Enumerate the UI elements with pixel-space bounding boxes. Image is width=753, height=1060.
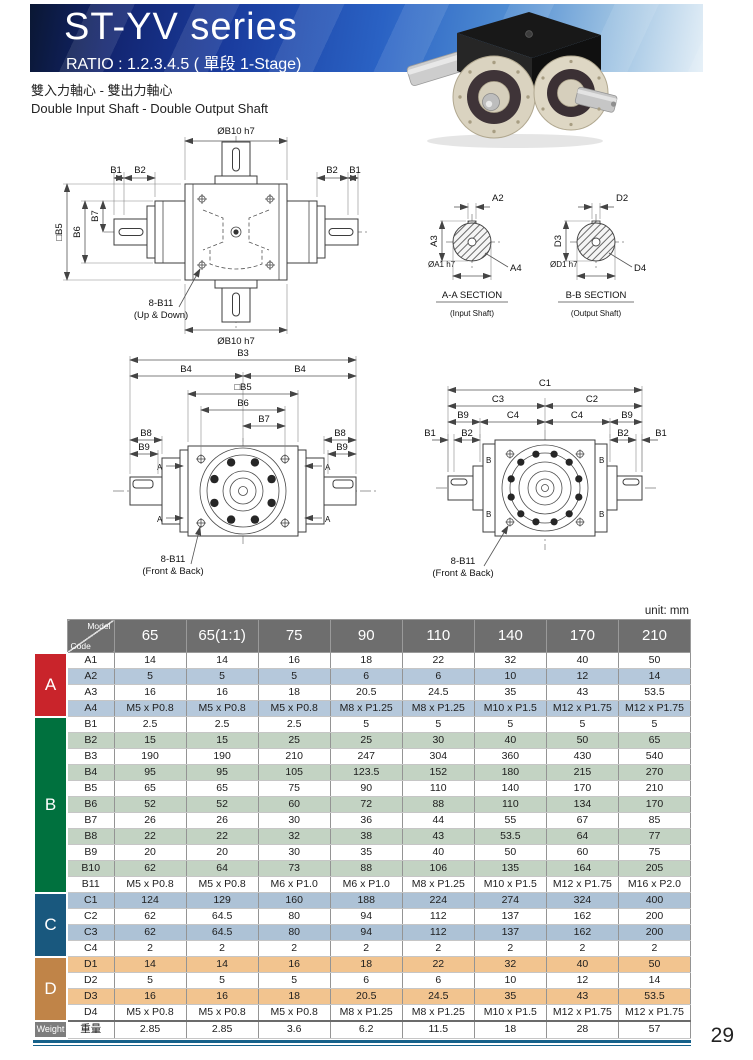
group-label-C: C	[34, 893, 67, 957]
cell: 2.5	[114, 717, 186, 733]
cell: 16	[186, 989, 258, 1005]
row-code: B1	[67, 717, 114, 733]
cell: M5 x P0.8	[186, 877, 258, 893]
cut-mark-a: A	[325, 515, 331, 524]
cell: 190	[186, 749, 258, 765]
row-code: A3	[67, 685, 114, 701]
dim-label-b1-left: B1	[110, 165, 122, 176]
cell: 188	[330, 893, 402, 909]
cell: 304	[402, 749, 474, 765]
cell: 67	[546, 813, 618, 829]
cell: 15	[186, 733, 258, 749]
cell: 162	[546, 925, 618, 941]
cell: 112	[402, 925, 474, 941]
column-header: 65	[114, 620, 186, 653]
cell: M6 x P1.0	[330, 877, 402, 893]
group-label-A: A	[34, 653, 67, 717]
cell: 2	[402, 941, 474, 957]
cell: 14	[186, 653, 258, 669]
dim-label-b7: B7	[258, 414, 270, 425]
cell: 14	[114, 653, 186, 669]
cell: 24.5	[402, 989, 474, 1005]
cell: 5	[186, 973, 258, 989]
table-row: B65252607288110134170	[34, 797, 691, 813]
table-row: A255566101214	[34, 669, 691, 685]
cell: 270	[618, 765, 690, 781]
cell: 110	[474, 797, 546, 813]
cell: 64.5	[186, 909, 258, 925]
bolt-note-sub: (Front & Back)	[432, 568, 493, 579]
cell: 152	[402, 765, 474, 781]
corner-code-label: Code	[71, 641, 91, 651]
cell: 430	[546, 749, 618, 765]
cell: M12 x P1.75	[618, 701, 690, 717]
cell: 26	[114, 813, 186, 829]
cell: M16 x P2.0	[618, 877, 690, 893]
table-row: B565657590110140170210	[34, 781, 691, 797]
row-code: C1	[67, 893, 114, 909]
cell: 88	[402, 797, 474, 813]
row-code: B9	[67, 845, 114, 861]
cell: 14	[618, 973, 690, 989]
dim-label-b1: B1	[655, 428, 667, 439]
cell: 22	[114, 829, 186, 845]
bolt-note-label: 8-B11	[451, 556, 476, 567]
cell: 200	[618, 925, 690, 941]
unit-label: unit: mm	[33, 603, 691, 619]
row-code: D1	[67, 957, 114, 973]
cell: 72	[330, 797, 402, 813]
cell: 324	[546, 893, 618, 909]
cell: 170	[546, 781, 618, 797]
cell: 16	[258, 653, 330, 669]
weight-label: Weight	[34, 1021, 67, 1038]
cell: 105	[258, 765, 330, 781]
cell: 25	[330, 733, 402, 749]
dim-label-c4: C4	[571, 410, 583, 421]
cell: 32	[474, 957, 546, 973]
cell: 57	[618, 1021, 690, 1038]
row-code: B3	[67, 749, 114, 765]
dim-label-b9: B9	[457, 410, 469, 421]
dim-label-d1: ØD1 h7	[550, 260, 578, 269]
cell: 53.5	[618, 989, 690, 1005]
cell: 18	[474, 1021, 546, 1038]
cell: 2	[186, 941, 258, 957]
cell: 62	[114, 909, 186, 925]
cell: 2.85	[114, 1021, 186, 1038]
cell: 12	[546, 973, 618, 989]
cell: 50	[618, 653, 690, 669]
cell: 64.5	[186, 925, 258, 941]
cell: 5	[546, 717, 618, 733]
cell: 62	[114, 861, 186, 877]
cell: 43	[546, 685, 618, 701]
cell: 124	[114, 893, 186, 909]
cell: 95	[186, 765, 258, 781]
cell: 5	[258, 669, 330, 685]
dim-label-a1: ØA1 h7	[428, 260, 456, 269]
table-row: DD11414161822324050	[34, 957, 691, 973]
cell: M8 x P1.25	[330, 1005, 402, 1022]
cell: 50	[618, 957, 690, 973]
cell: 14	[186, 957, 258, 973]
cut-mark-b: B	[486, 456, 491, 465]
corner-model-label: Model	[87, 621, 110, 631]
cell: 2	[546, 941, 618, 957]
product-photo	[393, 3, 628, 151]
dim-label-b3: B3	[237, 348, 249, 359]
cell: 247	[330, 749, 402, 765]
cell: 88	[330, 861, 402, 877]
cell: 85	[618, 813, 690, 829]
dim-label-b6: B6	[72, 226, 83, 238]
cell: M8 x P1.25	[402, 701, 474, 717]
cell: 30	[402, 733, 474, 749]
cell: 210	[258, 749, 330, 765]
dim-label-b8: B8	[334, 428, 346, 439]
row-code: B2	[67, 733, 114, 749]
cell: 205	[618, 861, 690, 877]
cell: M12 x P1.75	[546, 701, 618, 717]
cell: 10	[474, 973, 546, 989]
row-code: C3	[67, 925, 114, 941]
dim-label-b2-right: B2	[326, 165, 338, 176]
cell: 137	[474, 925, 546, 941]
cell: 2.85	[186, 1021, 258, 1038]
cell: 210	[618, 781, 690, 797]
cell: 160	[258, 893, 330, 909]
aa-section-sub: (Input Shaft)	[450, 309, 494, 318]
dim-label-b4: B4	[294, 364, 306, 375]
spec-table-body: AA11414161822324050A255566101214A3161618…	[34, 653, 691, 1039]
cell: 5	[618, 717, 690, 733]
cell: 200	[618, 909, 690, 925]
cell: 6	[402, 669, 474, 685]
cell: 5	[114, 973, 186, 989]
cell: 14	[618, 669, 690, 685]
dim-label-b6: B6	[237, 398, 249, 409]
cell: 15	[114, 733, 186, 749]
cell: 16	[258, 957, 330, 973]
weight-row: Weight重量2.852.853.66.211.5182857	[34, 1021, 691, 1038]
cell: 14	[114, 957, 186, 973]
column-header: 90	[330, 620, 402, 653]
cell: 274	[474, 893, 546, 909]
cell: 52	[186, 797, 258, 813]
cell: 65	[186, 781, 258, 797]
cell: 5	[114, 669, 186, 685]
spec-table-section: unit: mm ModelCode6565(1:1)7590110140170…	[33, 603, 691, 1046]
table-row: AA11414161822324050	[34, 653, 691, 669]
cell: 18	[258, 685, 330, 701]
table-row: BB12.52.52.555555	[34, 717, 691, 733]
cell: 64	[186, 861, 258, 877]
cell: 164	[546, 861, 618, 877]
cell: M5 x P0.8	[186, 1005, 258, 1022]
cell: 75	[258, 781, 330, 797]
table-row: B1062647388106135164205	[34, 861, 691, 877]
table-row: B11M5 x P0.8M5 x P0.8M6 x P1.0M6 x P1.0M…	[34, 877, 691, 893]
table-row: C26264.58094112137162200	[34, 909, 691, 925]
dim-label-b8: B8	[140, 428, 152, 439]
product-left-flange	[453, 56, 535, 138]
cell: 94	[330, 925, 402, 941]
row-code: C2	[67, 909, 114, 925]
cell: 52	[114, 797, 186, 813]
dim-label-a3: A3	[429, 235, 440, 247]
table-row: D316161820.524.5354353.5	[34, 989, 691, 1005]
cell: 162	[546, 909, 618, 925]
cell: 60	[546, 845, 618, 861]
bolt-note-sub: (Front & Back)	[142, 566, 203, 577]
cell: 25	[258, 733, 330, 749]
cell: 18	[330, 653, 402, 669]
bb-section: D2 D3 ØD1 h7 D4 B-B SECTION (Output Shaf…	[550, 193, 646, 318]
row-code: A1	[67, 653, 114, 669]
cell: 50	[474, 845, 546, 861]
cell: M8 x P1.25	[402, 1005, 474, 1022]
dim-label-b9: B9	[336, 442, 348, 453]
row-code: B6	[67, 797, 114, 813]
column-header: 170	[546, 620, 618, 653]
dim-label-a2: A2	[492, 193, 504, 204]
cell: 22	[402, 653, 474, 669]
group-label-B: B	[34, 717, 67, 893]
cell: 80	[258, 925, 330, 941]
cell: 35	[330, 845, 402, 861]
cut-mark-a: A	[157, 515, 163, 524]
cell: 360	[474, 749, 546, 765]
cell: 40	[546, 653, 618, 669]
cell: M10 x P1.5	[474, 1005, 546, 1022]
page-number: 29	[711, 1024, 734, 1048]
cell: 5	[402, 717, 474, 733]
dim-label-d2: D2	[616, 193, 628, 204]
cell: 18	[258, 989, 330, 1005]
cell: 5	[474, 717, 546, 733]
cell: 6.2	[330, 1021, 402, 1038]
dim-label-b9: B9	[621, 410, 633, 421]
datasheet-page: ST-YV series RATIO : 1.2.3.4.5 ( 單段 1-St…	[0, 0, 753, 1060]
cell: 16	[114, 989, 186, 1005]
group-label-D: D	[34, 957, 67, 1022]
row-code: A2	[67, 669, 114, 685]
cell: 44	[402, 813, 474, 829]
cell: 30	[258, 845, 330, 861]
cell: 180	[474, 765, 546, 781]
cell: 60	[258, 797, 330, 813]
cell: 53.5	[474, 829, 546, 845]
header-spacer	[34, 620, 67, 653]
row-code: D3	[67, 989, 114, 1005]
cut-mark-b: B	[599, 510, 604, 519]
column-header: 210	[618, 620, 690, 653]
cell: M5 x P0.8	[114, 701, 186, 717]
cell: 36	[330, 813, 402, 829]
ratio-subtitle: RATIO : 1.2.3.4.5 ( 單段 1-Stage)	[66, 50, 301, 74]
row-code: B7	[67, 813, 114, 829]
column-header: 110	[402, 620, 474, 653]
tagline-en: Double Input Shaft - Double Output Shaft	[31, 101, 268, 116]
cell: 2	[474, 941, 546, 957]
cell: M12 x P1.75	[546, 1005, 618, 1022]
cell: 40	[546, 957, 618, 973]
row-code: B11	[67, 877, 114, 893]
dim-label-d3: D3	[553, 235, 564, 247]
cell: 2	[330, 941, 402, 957]
cell: 30	[258, 813, 330, 829]
aa-section-title: A-A SECTION	[442, 290, 502, 301]
dim-label-b5: □B5	[54, 223, 65, 240]
cut-mark-b: B	[486, 510, 491, 519]
cell: 135	[474, 861, 546, 877]
cell: 112	[402, 909, 474, 925]
aa-section: A2 A3 ØA1 h7 A4 A-A SECTION (Input Shaft…	[428, 193, 522, 318]
dim-label-b2: B2	[461, 428, 473, 439]
dim-label-b1-right: B1	[349, 165, 361, 176]
cell: 400	[618, 893, 690, 909]
output-side-view-drawing: B B B B C1 C3 C2 B9 C4 C4 B9 B1 B2 B1 B2…	[418, 378, 753, 588]
cell: 6	[330, 973, 402, 989]
cut-mark-b: B	[599, 456, 604, 465]
cell: 18	[330, 957, 402, 973]
cell: 80	[258, 909, 330, 925]
column-header: 75	[258, 620, 330, 653]
cell: 22	[186, 829, 258, 845]
dim-label-b4: B4	[180, 364, 192, 375]
cell: 35	[474, 685, 546, 701]
dim-label-d4: D4	[634, 263, 646, 274]
bottom-rule	[33, 1040, 691, 1046]
bolt-note-label: 8-B11	[149, 298, 174, 309]
tagline-zh: 雙入力軸心 - 雙出力軸心	[31, 80, 173, 99]
cell: 5	[186, 669, 258, 685]
cell: 2	[258, 941, 330, 957]
table-header-row: ModelCode6565(1:1)7590110140170210	[34, 620, 691, 653]
cell: 77	[618, 829, 690, 845]
cell: 6	[330, 669, 402, 685]
dim-label-c2: C2	[586, 394, 598, 405]
table-row: B49595105123.5152180215270	[34, 765, 691, 781]
cell: 95	[114, 765, 186, 781]
table-row: B3190190210247304360430540	[34, 749, 691, 765]
cell: M12 x P1.75	[546, 877, 618, 893]
row-code: A4	[67, 701, 114, 717]
cell: 170	[618, 797, 690, 813]
cell: 22	[402, 957, 474, 973]
bb-section-title: B-B SECTION	[566, 290, 627, 301]
cell: 110	[402, 781, 474, 797]
dim-label-b10-top: ØB10 h7	[217, 126, 255, 137]
dim-label-b5: □B5	[234, 382, 251, 393]
row-code: B4	[67, 765, 114, 781]
cell: 55	[474, 813, 546, 829]
cell: M5 x P0.8	[186, 701, 258, 717]
cell: 106	[402, 861, 474, 877]
cell: 5	[258, 973, 330, 989]
cell: 137	[474, 909, 546, 925]
cell: 134	[546, 797, 618, 813]
cell: M12 x P1.75	[618, 1005, 690, 1022]
dim-label-c4: C4	[507, 410, 519, 421]
cell: 215	[546, 765, 618, 781]
cell: 2	[618, 941, 690, 957]
cell: 40	[474, 733, 546, 749]
product-right-flange	[534, 56, 618, 130]
cell: 20	[186, 845, 258, 861]
table-row: B92020303540506075	[34, 845, 691, 861]
table-row: A316161820.524.5354353.5	[34, 685, 691, 701]
row-code: B8	[67, 829, 114, 845]
bolt-note-label: 8-B11	[161, 554, 186, 565]
cell: M10 x P1.5	[474, 701, 546, 717]
dim-label-b9: B9	[138, 442, 150, 453]
cell: 24.5	[402, 685, 474, 701]
table-row: CC1124129160188224274324400	[34, 893, 691, 909]
table-row: B8222232384353.56477	[34, 829, 691, 845]
cell: 540	[618, 749, 690, 765]
row-code: D2	[67, 973, 114, 989]
column-header: 140	[474, 620, 546, 653]
cell: 65	[618, 733, 690, 749]
cell: 2	[114, 941, 186, 957]
side-view-drawing: A A A A B3 B4 B4 □B5 B6 B7 B8 B9 B8	[73, 346, 418, 586]
cell: 50	[546, 733, 618, 749]
cell: 12	[546, 669, 618, 685]
row-code: C4	[67, 941, 114, 957]
cell: M10 x P1.5	[474, 877, 546, 893]
cell: 3.6	[258, 1021, 330, 1038]
dim-label-c3: C3	[492, 394, 504, 405]
cell: 10	[474, 669, 546, 685]
model-code-corner: ModelCode	[67, 620, 114, 653]
cell: 62	[114, 925, 186, 941]
cell: 16	[186, 685, 258, 701]
cell: M5 x P0.8	[258, 1005, 330, 1022]
cell: 64	[546, 829, 618, 845]
cell: 190	[114, 749, 186, 765]
table-row: B21515252530405065	[34, 733, 691, 749]
bb-section-sub: (Output Shaft)	[571, 309, 622, 318]
cell: 73	[258, 861, 330, 877]
cell: 20.5	[330, 989, 402, 1005]
table-row: D255566101214	[34, 973, 691, 989]
dim-label-c1: C1	[539, 378, 551, 389]
cell: 40	[402, 845, 474, 861]
cell: 11.5	[402, 1021, 474, 1038]
weight-code: 重量	[67, 1021, 114, 1038]
shaft-sections-drawing: A2 A3 ØA1 h7 A4 A-A SECTION (Input Shaft…	[428, 188, 748, 328]
cell: 53.5	[618, 685, 690, 701]
dim-label-b2: B2	[617, 428, 629, 439]
cell: 224	[402, 893, 474, 909]
spec-table-head: ModelCode6565(1:1)7590110140170210	[34, 620, 691, 653]
cell: 75	[618, 845, 690, 861]
cell: 129	[186, 893, 258, 909]
cell: M5 x P0.8	[258, 701, 330, 717]
cell: 28	[546, 1021, 618, 1038]
cell: 6	[402, 973, 474, 989]
cell: 35	[474, 989, 546, 1005]
dim-label-b7: B7	[90, 210, 101, 222]
dim-label-b2-left: B2	[134, 165, 146, 176]
cell: 20	[114, 845, 186, 861]
cell: 26	[186, 813, 258, 829]
spec-table: ModelCode6565(1:1)7590110140170210AA1141…	[33, 619, 691, 1039]
cell: M6 x P1.0	[258, 877, 330, 893]
cell: M5 x P0.8	[114, 877, 186, 893]
